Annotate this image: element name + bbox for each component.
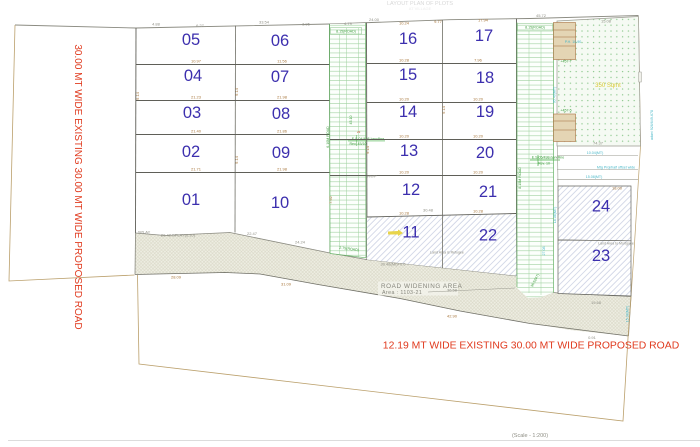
svg-text:6.10M ROAD: 6.10M ROAD — [326, 126, 330, 148]
svg-text:22.47: 22.47 — [247, 231, 258, 236]
svg-text:8.15M ROAD: 8.15M ROAD — [518, 167, 522, 189]
svg-text:21.98: 21.98 — [277, 95, 288, 100]
svg-text:27.08: 27.08 — [542, 247, 546, 256]
svg-text:10.20: 10.20 — [473, 134, 484, 139]
svg-text:21.71: 21.71 — [191, 167, 202, 172]
svg-text:24.00: 24.00 — [369, 17, 380, 22]
svg-text:+457-5: +457-5 — [560, 109, 571, 113]
svg-text:10.28: 10.28 — [399, 58, 410, 63]
svg-text:10.20: 10.20 — [399, 134, 410, 139]
svg-text:01: 01 — [182, 191, 200, 209]
svg-text:20: 20 — [476, 144, 494, 162]
svg-text:9.14: 9.14 — [365, 145, 370, 154]
svg-text:15.08(MT): 15.08(MT) — [586, 175, 603, 179]
svg-text:21.40: 21.40 — [191, 129, 202, 134]
svg-text:AT VILLAGE: AT VILLAGE — [409, 6, 432, 11]
svg-text:10.20: 10.20 — [399, 97, 410, 102]
svg-text:11.56: 11.56 — [277, 59, 287, 64]
svg-text:08: 08 — [272, 105, 290, 123]
svg-text:28.09: 28.09 — [171, 275, 182, 280]
svg-text:+457-7: +457-7 — [560, 60, 571, 64]
svg-text:30.00 MT WIDE EXISTING 30.00 M: 30.00 MT WIDE EXISTING 30.00 MT WIDE PRO… — [72, 44, 83, 329]
svg-text:24.24: 24.24 — [295, 240, 306, 245]
svg-text:Rev. 10: Rev. 10 — [538, 162, 550, 166]
svg-text:14: 14 — [399, 103, 417, 121]
svg-text:11: 11 — [402, 224, 419, 242]
svg-text:05: 05 — [182, 31, 200, 49]
svg-text:18.00: 18.00 — [612, 186, 623, 191]
svg-text:15.08(MT): 15.08(MT) — [626, 306, 630, 323]
svg-text:350 Sqmt: 350 Sqmt — [595, 83, 621, 89]
svg-text:23: 23 — [592, 247, 610, 265]
svg-text:74.37: 74.37 — [593, 141, 604, 146]
svg-text:95.40(MT): 95.40(MT) — [553, 87, 557, 104]
svg-text:03: 03 — [183, 104, 201, 122]
svg-text:21.23: 21.23 — [191, 95, 202, 100]
svg-text:09: 09 — [272, 144, 290, 162]
svg-text:23: 23 — [357, 130, 361, 134]
svg-text:10.24: 10.24 — [399, 21, 410, 26]
svg-text:3.05: 3.05 — [302, 22, 311, 27]
svg-text:15: 15 — [399, 66, 417, 84]
svg-text:SPLAY: SPLAY — [138, 230, 151, 235]
svg-text:19: 19 — [476, 103, 494, 121]
svg-text:(Scale - 1:200): (Scale - 1:200) — [512, 433, 548, 439]
svg-text:E.S.04/498-handline: E.S.04/498-handline — [352, 137, 385, 141]
svg-text:4.79: 4.79 — [344, 21, 353, 26]
svg-text:RWP: RWP — [367, 174, 377, 179]
svg-text:Land Area is Refugee: Land Area is Refugee — [430, 251, 464, 255]
svg-text:24: 24 — [592, 198, 610, 216]
svg-text:12.19 MT WIDE EXISTING 30.00 M: 12.19 MT WIDE EXISTING 30.00 MT WIDE PRO… — [383, 341, 679, 352]
svg-text:17: 17 — [475, 27, 493, 45]
svg-text:06: 06 — [271, 32, 289, 50]
svg-text:15.08: 15.08 — [601, 19, 612, 24]
svg-text:04: 04 — [184, 67, 202, 85]
svg-text:30.48(Mt)+0.0: 30.48(Mt)+0.0 — [380, 262, 406, 267]
svg-text:8.15(ROAD): 8.15(ROAD) — [525, 26, 545, 30]
svg-text:10.20: 10.20 — [473, 170, 484, 175]
svg-text:13: 13 — [400, 142, 418, 160]
svg-text:21.98: 21.98 — [277, 167, 288, 172]
svg-text:Area : 1103-21: Area : 1103-21 — [382, 290, 422, 296]
svg-text:12: 12 — [402, 181, 420, 199]
svg-text:42.90: 42.90 — [447, 314, 458, 319]
svg-text:21.86: 21.86 — [277, 129, 288, 134]
svg-text:16: 16 — [399, 30, 417, 48]
svg-text:E.S.05/498-handline: E.S.05/498-handline — [532, 156, 565, 160]
svg-text:10.97: 10.97 — [191, 59, 202, 64]
svg-text:31.09: 31.09 — [281, 282, 292, 287]
svg-text:10.20: 10.20 — [399, 170, 410, 175]
svg-text:9.14: 9.14 — [234, 155, 239, 164]
svg-text:9.77: 9.77 — [434, 19, 443, 24]
svg-text:18.08(MT): 18.08(MT) — [553, 207, 557, 224]
svg-text:20.42 SPLAY(6.10): 20.42 SPLAY(6.10) — [161, 233, 196, 238]
svg-text:18: 18 — [476, 69, 494, 87]
svg-text:7.96: 7.96 — [474, 58, 483, 63]
svg-text:22: 22 — [479, 227, 497, 245]
svg-text:10: 10 — [271, 194, 289, 212]
svg-text:30.48: 30.48 — [423, 208, 434, 213]
svg-text:Mtg Proj/half offset wide: Mtg Proj/half offset wide — [597, 166, 635, 170]
svg-text:Rev. 45/10: Rev. 45/10 — [349, 142, 366, 146]
svg-text:19.68: 19.68 — [591, 300, 602, 305]
svg-text:Land Area to Mortgage: Land Area to Mortgage — [598, 242, 634, 246]
svg-text:8.15(ROAD): 8.15(ROAD) — [336, 30, 356, 34]
svg-text:10.04(MT): 10.04(MT) — [587, 151, 604, 155]
svg-text:P.H. 10.90: P.H. 10.90 — [565, 40, 582, 44]
svg-text:9.14: 9.14 — [135, 91, 140, 100]
svg-text:45.10: 45.10 — [349, 116, 353, 125]
svg-text:4.88: 4.88 — [152, 22, 161, 27]
svg-text:17.94: 17.94 — [478, 18, 489, 23]
svg-text:10.28: 10.28 — [399, 211, 410, 216]
svg-text:adani 926/649-678: adani 926/649-678 — [650, 110, 654, 140]
svg-text:02: 02 — [182, 143, 200, 161]
svg-text:6.27: 6.27 — [196, 23, 205, 28]
svg-text:33.54: 33.54 — [259, 20, 270, 25]
svg-text:9.14: 9.14 — [234, 87, 239, 96]
svg-text:7.62: 7.62 — [328, 195, 333, 204]
svg-text:45.72: 45.72 — [536, 13, 547, 18]
svg-text:9.14: 9.14 — [441, 105, 446, 114]
svg-text:10.28: 10.28 — [473, 209, 484, 214]
svg-text:07: 07 — [271, 68, 289, 86]
svg-text:36.58: 36.58 — [447, 288, 458, 293]
svg-text:0.91: 0.91 — [588, 335, 597, 340]
svg-text:10.20: 10.20 — [473, 97, 484, 102]
svg-text:21: 21 — [479, 183, 497, 201]
